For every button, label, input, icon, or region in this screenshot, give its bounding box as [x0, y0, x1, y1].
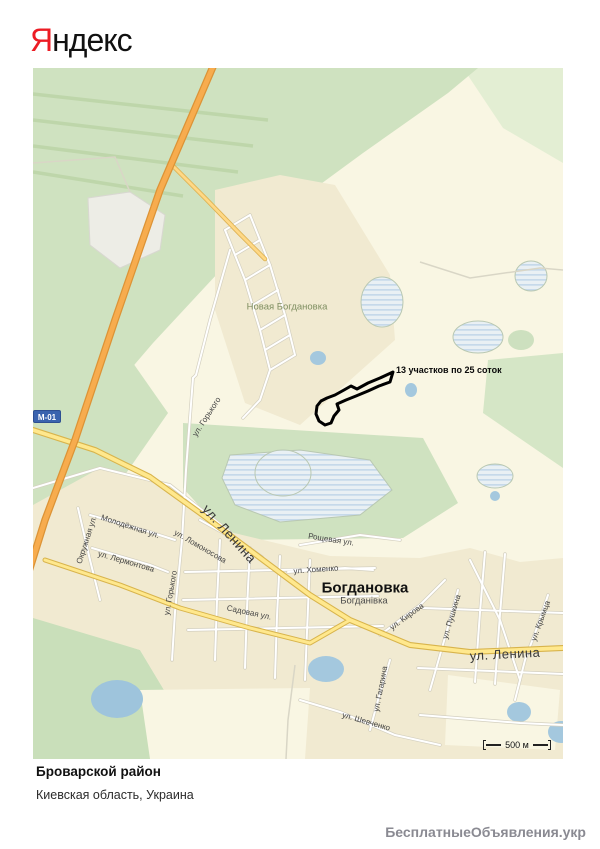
scale-line — [486, 744, 501, 745]
district-title: Броварской район — [36, 764, 161, 779]
yandex-logo-rest: ндекс — [52, 22, 132, 58]
street-label-lenina-east: ул. Ленина — [469, 646, 540, 663]
plots-annotation: 13 участков по 25 соток — [396, 365, 502, 375]
road-shield-m01: М-01 — [33, 410, 61, 423]
map-scale: 500 м — [483, 739, 551, 751]
area-label-bogdanovka: Богдановка — [322, 581, 409, 596]
area-label-nova-bogdanovka: Новая Богдановка — [247, 302, 328, 312]
region-subtitle: Киевская область, Украина — [36, 788, 194, 802]
map-image: Новая Богдановка Богдановка Богданівка у… — [33, 68, 563, 759]
yandex-logo: Яндекс — [30, 22, 132, 59]
scale-right-tick — [548, 740, 551, 750]
scale-label: 500 м — [501, 741, 533, 750]
scale-line — [533, 744, 548, 745]
site-watermark: БесплатныеОбъявления.укр — [385, 824, 586, 840]
yandex-logo-letter: Я — [30, 22, 52, 58]
area-label-bogdanivka: Богданівка — [340, 596, 387, 606]
page: Яндекс — [0, 0, 600, 849]
